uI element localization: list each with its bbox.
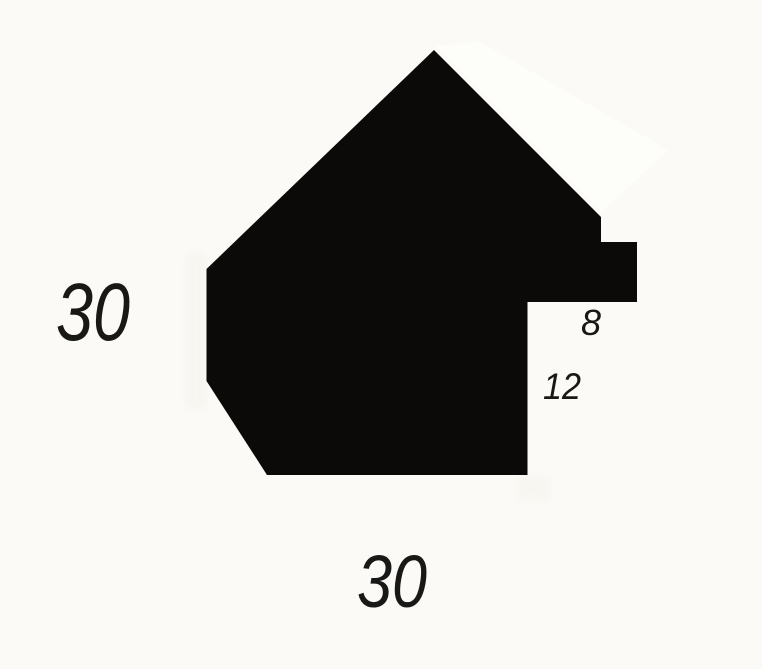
svg-text:30: 30 [56,267,130,358]
svg-text:8: 8 [581,302,601,343]
svg-text:12: 12 [543,366,581,407]
svg-text:30: 30 [357,540,427,623]
